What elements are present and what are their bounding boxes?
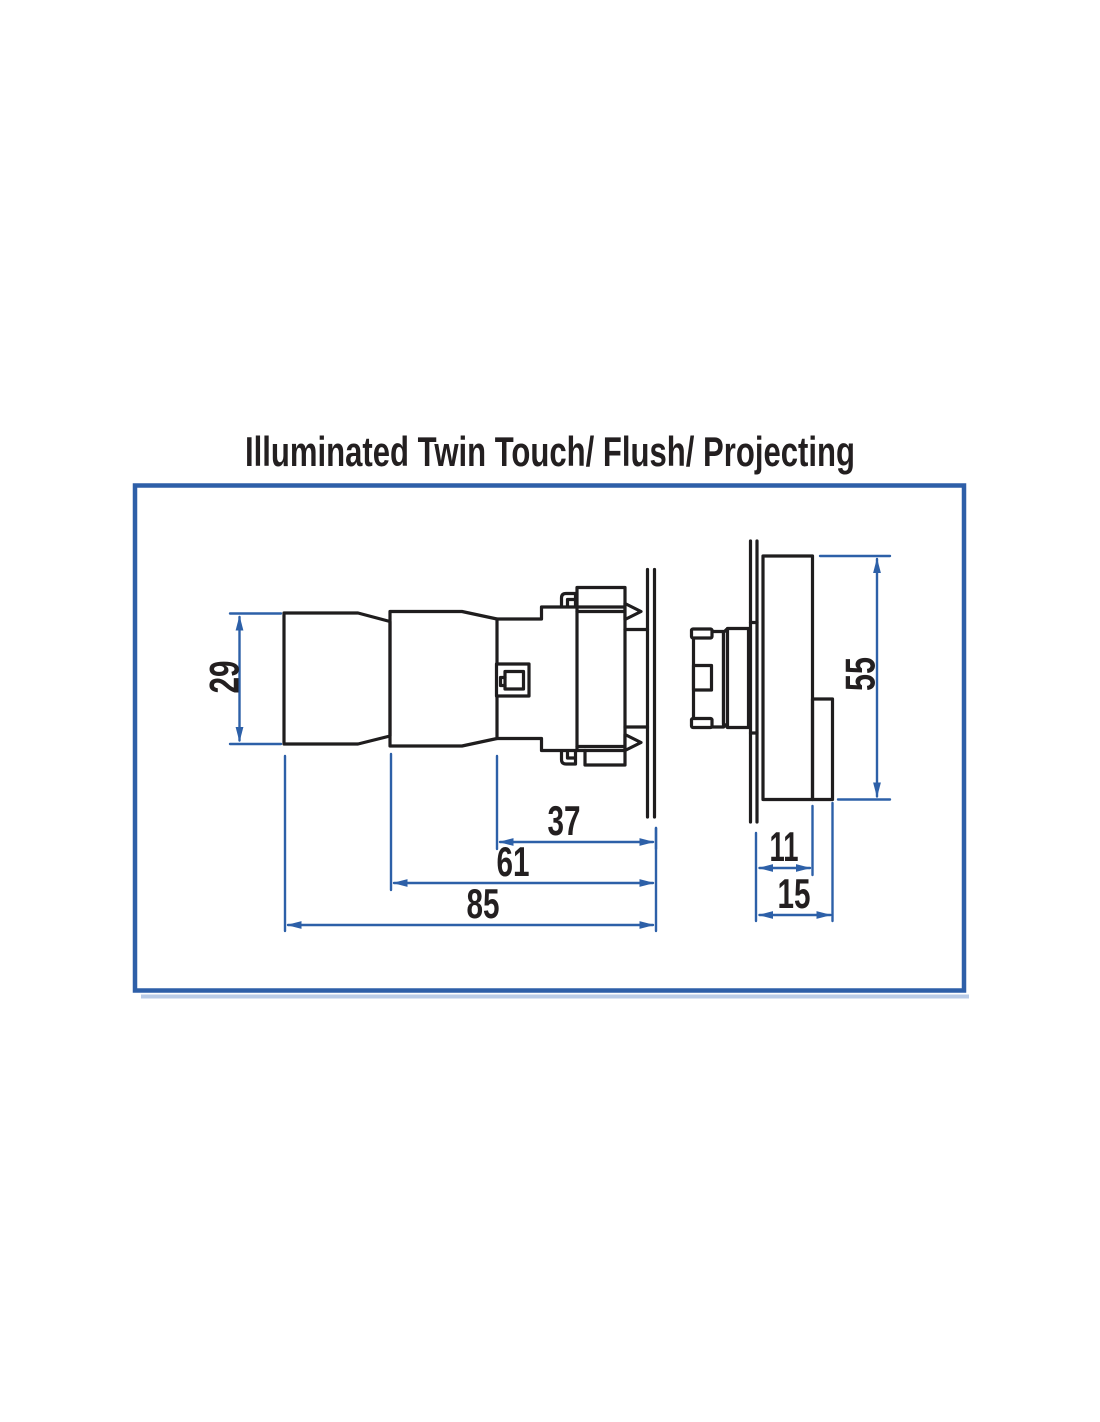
dim-label-29: 29 [201,661,248,694]
dim-label-37: 37 [548,797,581,844]
rear-unit-terminal-step [813,699,833,800]
panel-section-left-view [648,570,655,818]
frame-border [135,486,964,991]
catalog-page: Illuminated Twin Touch/ Flush/ Projectin… [0,0,1100,1422]
coupling-tab-top [692,629,713,638]
button-cap-outline [284,613,390,744]
coupling-cap [724,629,749,728]
part-outline-group [284,541,833,822]
bezel-flange [625,630,648,728]
side-view-assembled [284,570,655,818]
page-title: Illuminated Twin Touch/ Flush/ Projectin… [245,428,855,475]
spring-clip-top [625,604,641,620]
guard-section-outline [390,612,497,747]
dim-label-55: 55 [837,657,884,691]
drawing-canvas: Illuminated Twin Touch/ Flush/ Projectin… [0,0,1100,1422]
dim-label-61: 61 [497,838,530,885]
mounting-sleeve [577,588,625,766]
dim-label-11: 11 [770,823,799,870]
coupling-notch [694,666,712,691]
dim-label-85: 85 [467,880,500,927]
spring-clip-bottom [625,735,641,751]
panel-section-rear-view [751,541,758,822]
coupling-tab-bottom [692,719,713,728]
dim-label-15: 15 [778,870,811,917]
rear-unit-body [763,556,813,800]
dimension-labels: 29 55 37 61 85 11 15 [201,657,884,927]
retaining-hook-bottom [562,751,576,764]
retaining-hook-top [562,594,576,607]
body-bottom-edge [497,739,625,751]
rear-view-exploded [692,541,833,822]
